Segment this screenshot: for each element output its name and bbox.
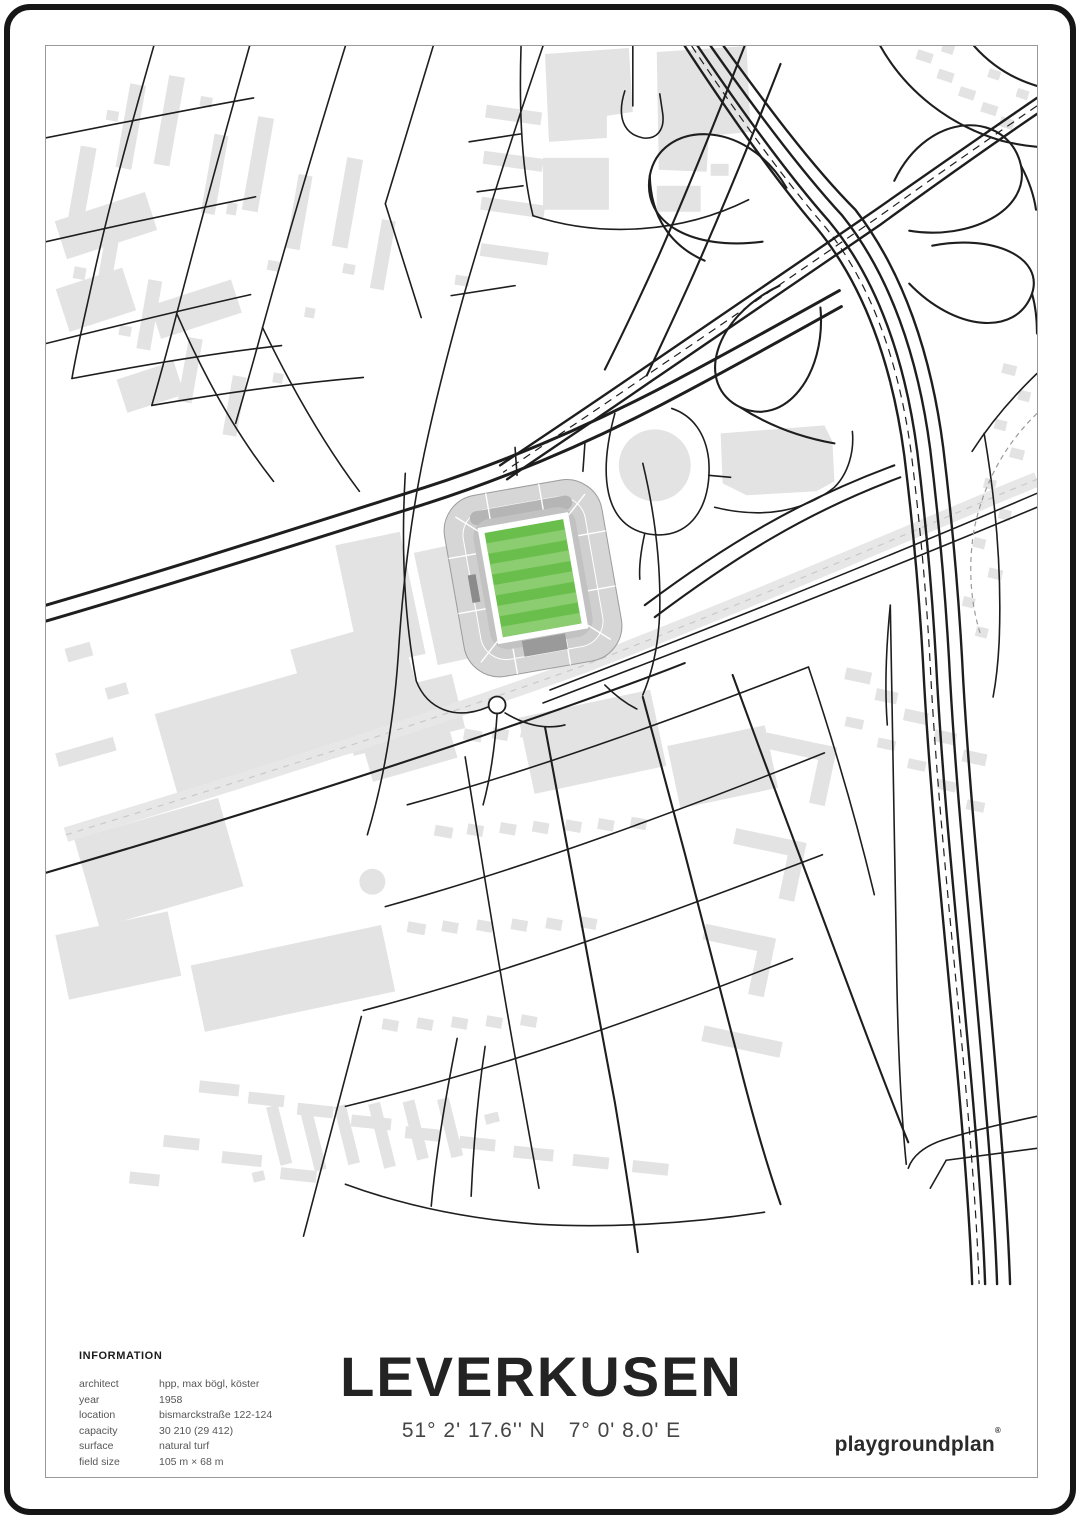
latitude: 51° 2' 17.6'' N [402, 1419, 546, 1442]
registered-trademark-mark: ® [995, 1426, 1001, 1435]
footpath-dashed [971, 413, 1037, 633]
cloverleaf-interchange [649, 125, 1037, 443]
poster-content: INFORMATION architect hpp, max bögl, kös… [45, 45, 1038, 1478]
circular-building [619, 429, 691, 501]
page-title: LEVERKUSEN [46, 1348, 1037, 1407]
info-row-field-size: field size 105 m × 68 m [79, 1455, 319, 1471]
brand-logo: playgroundplan® [835, 1426, 1001, 1457]
longitude: 7° 0' 8.0' E [569, 1419, 681, 1442]
city-map [46, 46, 1037, 1329]
stadium [438, 474, 627, 683]
roundabout [489, 696, 506, 713]
